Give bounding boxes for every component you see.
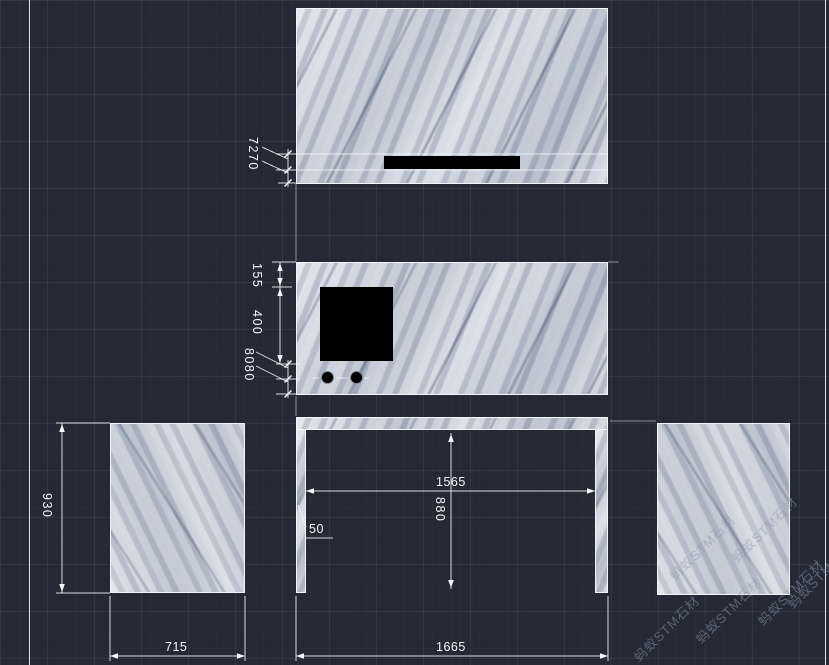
dim-text-opening-height[interactable]: 880 [433,497,446,522]
dim-text-frame-total-width[interactable]: 1665 [436,641,466,654]
frame-top-rail[interactable] [296,417,608,430]
dim-text-opening-width[interactable]: 1565 [436,476,466,489]
dim-text-mid-cutout-height[interactable]: 400 [250,310,263,335]
faucet-hole-right[interactable] [350,371,363,384]
left-side-panel[interactable] [110,423,245,593]
cad-drawing-area[interactable]: 7270 155 400 8080 930 880 1565 50 715 16… [0,0,829,665]
frame-right-leg[interactable] [595,429,608,593]
dim-text-left-panel-height[interactable]: 930 [40,493,53,518]
dim-text-mid-top-offset[interactable]: 155 [250,263,263,288]
construction-line-left [29,0,30,665]
frame-left-leg[interactable] [296,429,306,593]
dim-text-top-bands[interactable]: 7270 [246,137,259,171]
niche-cutout[interactable] [384,156,520,169]
sink-cutout[interactable] [320,287,393,361]
watermark: 蚂蚁STM石材 [629,591,704,665]
dim-text-leg-width[interactable]: 50 [309,523,324,536]
faucet-hole-left[interactable] [321,371,334,384]
dim-text-mid-bands[interactable]: 8080 [242,348,255,382]
dim-text-left-panel-width[interactable]: 715 [165,641,187,654]
